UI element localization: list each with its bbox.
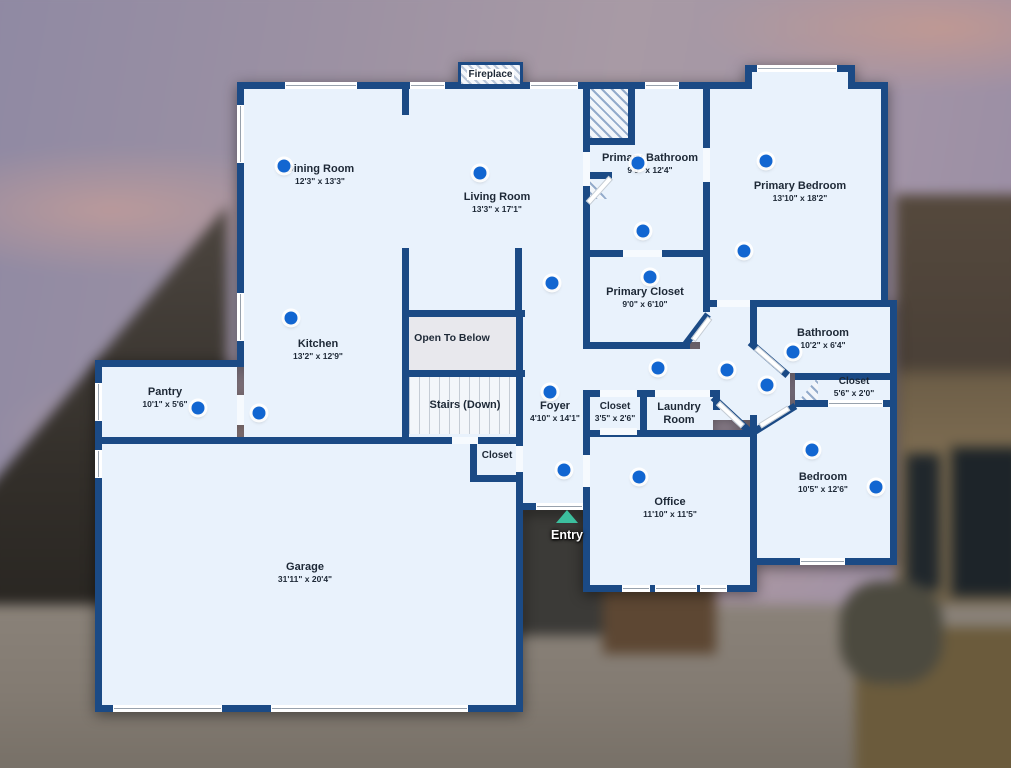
room-label-primary-bathroom: Primary Bathroom9'0" x 12'4" bbox=[602, 152, 698, 175]
room-dimensions: 10'5" x 12'6" bbox=[798, 484, 848, 494]
wall bbox=[750, 415, 757, 592]
room-name: Stairs (Down) bbox=[430, 399, 501, 412]
room-label-stairs-down: Stairs (Down) bbox=[430, 399, 501, 412]
wall bbox=[703, 257, 710, 312]
window bbox=[800, 558, 845, 565]
window bbox=[655, 585, 697, 592]
wall bbox=[583, 82, 590, 349]
room-label-office: Office11'10" x 11'5" bbox=[643, 496, 697, 519]
room-label-garage: Garage31'11" x 20'4" bbox=[278, 561, 332, 584]
panorama-dot[interactable] bbox=[721, 364, 734, 377]
room-name: Laundry Room bbox=[641, 401, 717, 427]
window bbox=[237, 293, 244, 341]
panorama-dot[interactable] bbox=[738, 245, 751, 258]
panorama-dot[interactable] bbox=[633, 471, 646, 484]
door-opening bbox=[655, 390, 710, 397]
window bbox=[622, 585, 650, 592]
panorama-dot[interactable] bbox=[761, 379, 774, 392]
door-opening bbox=[237, 395, 244, 425]
room-name: Primary Closet bbox=[606, 286, 684, 299]
room-label-closet-foyer: Closet3'5" x 2'6" bbox=[595, 401, 635, 423]
floor-bay-window bbox=[752, 72, 848, 89]
room-name: Closet bbox=[595, 401, 635, 413]
panorama-dot[interactable] bbox=[870, 481, 883, 494]
room-dimensions: 4'10" x 14'1" bbox=[530, 413, 580, 423]
window bbox=[828, 400, 883, 407]
door-opening bbox=[583, 455, 590, 487]
room-dimensions: 13'10" x 18'2" bbox=[754, 193, 846, 203]
room-label-kitchen: Kitchen13'2" x 12'9" bbox=[293, 338, 343, 361]
garage-door bbox=[271, 705, 468, 712]
door-opening bbox=[600, 390, 637, 397]
panorama-dot[interactable] bbox=[278, 160, 291, 173]
floor-foyer bbox=[522, 255, 583, 503]
room-dimensions: 3'5" x 2'6" bbox=[595, 413, 635, 423]
room-label-closet-hall: Closet5'6" x 2'0" bbox=[834, 376, 874, 398]
room-label-dining-room: Dining Room12'3" x 13'3" bbox=[286, 163, 354, 186]
panorama-dot[interactable] bbox=[253, 407, 266, 420]
panorama-dot[interactable] bbox=[474, 167, 487, 180]
wall bbox=[402, 82, 409, 115]
window bbox=[410, 82, 445, 89]
wall bbox=[516, 310, 523, 712]
panorama-dot[interactable] bbox=[632, 157, 645, 170]
panorama-dot[interactable] bbox=[558, 464, 571, 477]
entry-door bbox=[536, 503, 583, 510]
room-label-closet-stairs: Closet bbox=[482, 450, 513, 462]
panorama-dot[interactable] bbox=[544, 386, 557, 399]
room-name: Open To Below bbox=[414, 332, 490, 345]
room-label-foyer: Foyer4'10" x 14'1" bbox=[530, 400, 580, 423]
room-label-primary-bedroom: Primary Bedroom13'10" x 18'2" bbox=[754, 180, 846, 203]
door-opening bbox=[703, 148, 710, 182]
wall bbox=[881, 82, 888, 307]
room-name: Foyer bbox=[530, 400, 580, 413]
wall bbox=[848, 65, 855, 89]
room-dimensions: 9'0" x 12'4" bbox=[602, 165, 698, 175]
wall bbox=[402, 248, 409, 444]
panorama-dot[interactable] bbox=[787, 346, 800, 359]
room-label-primary-closet: Primary Closet9'0" x 6'10" bbox=[606, 286, 684, 309]
room-label-laundry-room: Laundry Room bbox=[641, 401, 717, 427]
wall bbox=[750, 300, 757, 345]
room-label-bedroom: Bedroom10'5" x 12'6" bbox=[798, 471, 848, 494]
wall bbox=[628, 82, 635, 145]
room-dimensions: 5'6" x 2'0" bbox=[834, 388, 874, 398]
room-dimensions: 10'2" x 6'4" bbox=[797, 340, 849, 350]
window bbox=[95, 383, 102, 421]
garage-door bbox=[113, 705, 222, 712]
wall bbox=[890, 300, 897, 565]
room-dimensions: 12'3" x 13'3" bbox=[286, 176, 354, 186]
room-name: Closet bbox=[482, 450, 513, 462]
door-opening bbox=[583, 152, 590, 186]
shower-hatch bbox=[590, 89, 628, 138]
window bbox=[757, 65, 837, 72]
panorama-dot[interactable] bbox=[644, 271, 657, 284]
room-label-open-to-below: Open To Below bbox=[414, 332, 490, 345]
window bbox=[700, 585, 727, 592]
room-label-living-room: Living Room13'3" x 17'1" bbox=[464, 191, 531, 214]
room-name: Bedroom bbox=[798, 471, 848, 484]
wall bbox=[405, 370, 525, 377]
door-opening bbox=[717, 300, 750, 307]
room-name: Living Room bbox=[464, 191, 531, 204]
wall bbox=[515, 248, 522, 310]
room-dimensions: 13'3" x 17'1" bbox=[464, 204, 531, 214]
entry-arrow-icon bbox=[556, 510, 578, 523]
room-dimensions: 13'2" x 12'9" bbox=[293, 351, 343, 361]
room-dimensions: 11'10" x 11'5" bbox=[643, 509, 697, 519]
panorama-dot[interactable] bbox=[637, 225, 650, 238]
window bbox=[285, 82, 357, 89]
wall bbox=[95, 437, 102, 712]
door-opening bbox=[600, 428, 637, 435]
room-name: Closet bbox=[834, 376, 874, 388]
panorama-dot[interactable] bbox=[760, 155, 773, 168]
door-opening bbox=[516, 446, 523, 472]
room-name: Bathroom bbox=[797, 327, 849, 340]
fireplace-label: Fireplace bbox=[467, 69, 515, 80]
room-name: Garage bbox=[278, 561, 332, 574]
room-dimensions: 9'0" x 6'10" bbox=[606, 299, 684, 309]
panorama-dot[interactable] bbox=[285, 312, 298, 325]
room-label-pantry: Pantry10'1" x 5'6" bbox=[142, 386, 187, 409]
wall bbox=[405, 310, 525, 317]
panorama-dot[interactable] bbox=[806, 444, 819, 457]
window bbox=[530, 82, 578, 89]
floorplan-viewer: Fireplace Dining Room12'3" x 13'3"Living… bbox=[0, 0, 1011, 768]
wall bbox=[95, 360, 244, 367]
door-opening bbox=[452, 437, 478, 444]
window bbox=[645, 82, 679, 89]
door-opening bbox=[623, 250, 662, 257]
panorama-dot[interactable] bbox=[192, 402, 205, 415]
wall bbox=[745, 65, 752, 89]
room-dimensions: 31'11" x 20'4" bbox=[278, 574, 332, 584]
wall bbox=[583, 390, 590, 592]
room-name: Kitchen bbox=[293, 338, 343, 351]
room-name: Pantry bbox=[142, 386, 187, 399]
room-name: Primary Bedroom bbox=[754, 180, 846, 193]
room-dimensions: 10'1" x 5'6" bbox=[142, 399, 187, 409]
window bbox=[237, 105, 244, 163]
room-name: Dining Room bbox=[286, 163, 354, 176]
panorama-dot[interactable] bbox=[546, 277, 559, 290]
room-name: Primary Bathroom bbox=[602, 152, 698, 165]
fireplace-feature: Fireplace bbox=[458, 62, 523, 87]
entry-label: Entry bbox=[551, 528, 583, 542]
panorama-dot[interactable] bbox=[652, 362, 665, 375]
wall bbox=[583, 342, 690, 349]
room-name: Office bbox=[643, 496, 697, 509]
room-label-bathroom: Bathroom10'2" x 6'4" bbox=[797, 327, 849, 350]
window bbox=[95, 450, 102, 478]
